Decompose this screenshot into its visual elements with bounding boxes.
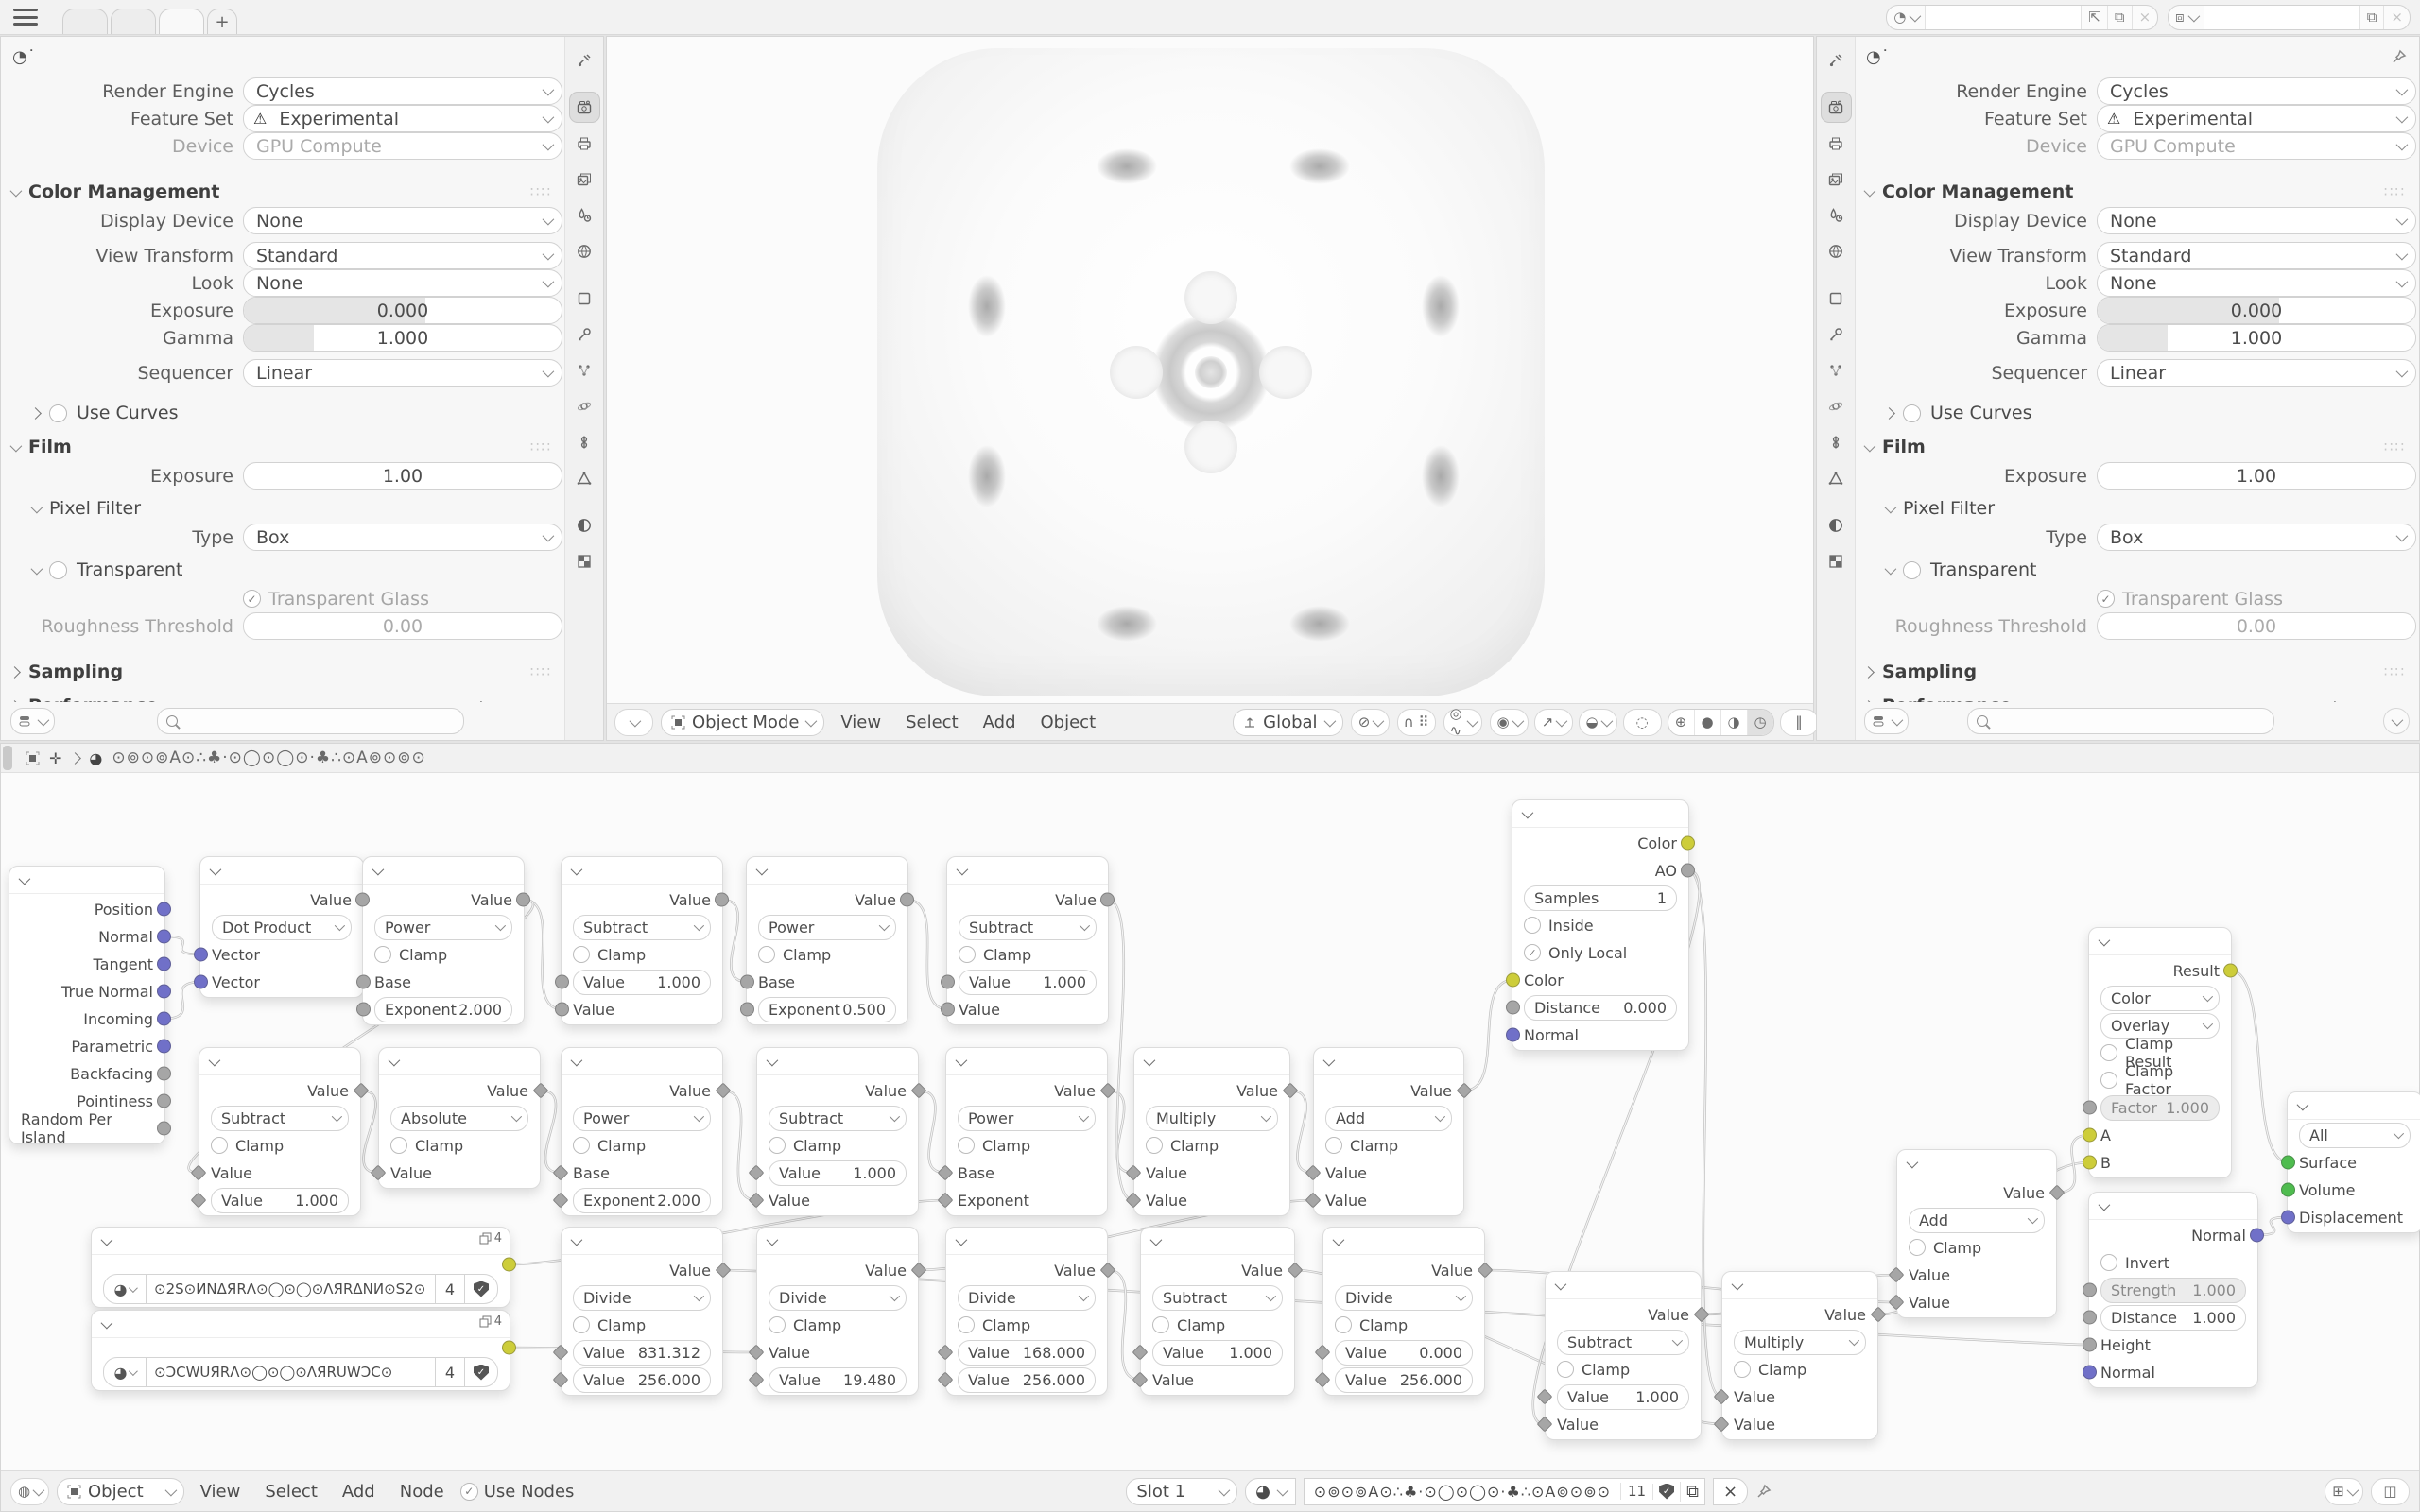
- editor-type-button[interactable]: ◍: [10, 1478, 49, 1505]
- node-dropdown[interactable]: Multiply: [1146, 1106, 1278, 1131]
- exposure-slider[interactable]: 0.000: [2097, 297, 2416, 324]
- scene-name-field[interactable]: [1926, 6, 2082, 29]
- node-dropdown[interactable]: Subtract: [211, 1106, 349, 1131]
- node-collapse-icon[interactable]: [767, 1233, 779, 1246]
- input-socket[interactable]: [1126, 1193, 1142, 1209]
- node-dropdown[interactable]: Divide: [573, 1285, 711, 1311]
- node[interactable]: ValueSubtractClampValue1.000Value: [1140, 1227, 1295, 1396]
- properties-tab-view-layer[interactable]: [569, 163, 600, 195]
- device-dropdown[interactable]: GPU Compute: [2097, 132, 2416, 160]
- node-checkbox[interactable]: [573, 1137, 590, 1154]
- input-socket[interactable]: [555, 1003, 569, 1017]
- output-socket[interactable]: [1871, 1307, 1887, 1323]
- gamma-slider[interactable]: 1.000: [2097, 324, 2416, 352]
- node-value-field[interactable]: Value1.000: [769, 1160, 907, 1186]
- exposure-field[interactable]: 1.00: [243, 462, 562, 490]
- input-socket[interactable]: [371, 1165, 387, 1181]
- node-dropdown[interactable]: Power: [374, 915, 512, 940]
- use-curves-checkbox[interactable]: [49, 404, 67, 422]
- menu-add[interactable]: Add: [975, 713, 1025, 732]
- node-checkbox[interactable]: [1524, 917, 1541, 934]
- input-socket[interactable]: [2083, 1366, 2097, 1380]
- node-checkbox[interactable]: [769, 1316, 786, 1333]
- image-users-count[interactable]: 4: [436, 1357, 465, 1387]
- app-menu-icon[interactable]: [13, 9, 38, 26]
- input-socket[interactable]: [1506, 973, 1520, 988]
- properties-tab-particles[interactable]: [569, 354, 600, 386]
- output-socket[interactable]: [1681, 836, 1695, 850]
- view-layer-name-field[interactable]: [2204, 6, 2360, 29]
- node-collapse-icon[interactable]: [372, 863, 385, 875]
- input-socket[interactable]: [553, 1345, 569, 1361]
- node-checkbox[interactable]: [211, 1137, 228, 1154]
- node-value-field[interactable]: Value1.000: [959, 970, 1097, 995]
- menu-view[interactable]: View: [832, 713, 890, 732]
- node-checkbox[interactable]: [758, 946, 775, 963]
- input-socket[interactable]: [194, 975, 208, 989]
- menu-select[interactable]: Select: [256, 1482, 326, 1502]
- node-collapse-icon[interactable]: [2297, 1098, 2309, 1110]
- panel-transparent[interactable]: Transparent: [1, 556, 565, 584]
- input-socket[interactable]: [749, 1193, 765, 1209]
- transparent-glass-checkbox[interactable]: ✓Transparent Glass: [243, 589, 429, 610]
- node-dropdown[interactable]: Subtract: [1152, 1285, 1283, 1311]
- output-socket[interactable]: [716, 1083, 732, 1099]
- filter-toggle-button[interactable]: [1864, 708, 1909, 734]
- roughness-threshold-field[interactable]: 0.00: [2097, 612, 2416, 640]
- input-socket[interactable]: [2281, 1211, 2295, 1225]
- input-socket[interactable]: [1132, 1345, 1149, 1361]
- properties-editor-icon[interactable]: ◔˙: [12, 47, 36, 67]
- search-input[interactable]: [157, 708, 464, 734]
- node[interactable]: ValueDivideClampValue831.312Value256.000: [561, 1227, 723, 1396]
- node-checkbox[interactable]: [2100, 1044, 2117, 1061]
- properties-tab-render[interactable]: [569, 92, 600, 123]
- drag-grip-icon[interactable]: ∷∷: [2384, 663, 2406, 680]
- node-collapse-icon[interactable]: [571, 1233, 583, 1246]
- properties-tab-render[interactable]: [1821, 92, 1852, 123]
- input-socket[interactable]: [191, 1193, 207, 1209]
- output-socket[interactable]: [2223, 964, 2238, 978]
- shading-wireframe-icon[interactable]: ⊕: [1668, 710, 1695, 735]
- output-socket[interactable]: [1100, 1083, 1116, 1099]
- output-socket[interactable]: [157, 1039, 171, 1054]
- input-socket[interactable]: [1506, 1001, 1520, 1015]
- input-socket[interactable]: [1315, 1345, 1331, 1361]
- properties-editor-icon[interactable]: ◔˙: [1866, 47, 1890, 67]
- output-socket[interactable]: [1457, 1083, 1473, 1099]
- roughness-threshold-field[interactable]: 0.00: [243, 612, 562, 640]
- copy-icon[interactable]: ⧉: [2360, 6, 2385, 29]
- input-socket[interactable]: [1714, 1389, 1730, 1405]
- output-socket[interactable]: [355, 893, 370, 907]
- node-collapse-icon[interactable]: [767, 1054, 779, 1066]
- type-dropdown[interactable]: Box: [2097, 524, 2416, 551]
- input-socket[interactable]: [553, 1193, 569, 1209]
- output-socket[interactable]: [1694, 1307, 1710, 1323]
- node-checkbox[interactable]: [958, 1137, 975, 1154]
- node-value-field[interactable]: Exponent2.000: [573, 1188, 711, 1213]
- output-socket[interactable]: [157, 1012, 171, 1026]
- properties-tab-physics[interactable]: [1821, 390, 1852, 421]
- close-icon[interactable]: ×: [2133, 6, 2158, 29]
- scene-icon[interactable]: ◔: [1887, 6, 1926, 29]
- pin-icon[interactable]: [1755, 1483, 1772, 1500]
- input-socket[interactable]: [938, 1165, 954, 1181]
- output-socket[interactable]: [1283, 1083, 1299, 1099]
- node-dropdown[interactable]: Power: [958, 1106, 1096, 1131]
- node-value-field[interactable]: Value256.000: [1335, 1367, 1473, 1393]
- shading-material-icon[interactable]: ◑: [1721, 710, 1748, 735]
- input-socket[interactable]: [1537, 1417, 1553, 1433]
- node[interactable]: PositionNormalTangentTrue NormalIncoming…: [9, 866, 165, 1144]
- node-value-field[interactable]: Value0.000: [1335, 1340, 1473, 1366]
- node-value-field[interactable]: Value1.000: [573, 970, 711, 995]
- material-users-count[interactable]: 11: [1620, 1483, 1652, 1500]
- input-socket[interactable]: [2083, 1338, 2097, 1352]
- output-socket[interactable]: [1681, 864, 1695, 878]
- input-socket[interactable]: [356, 975, 371, 989]
- node-checkbox[interactable]: [1909, 1239, 1926, 1256]
- node-value-field[interactable]: Value256.000: [958, 1367, 1096, 1393]
- workspace-tab[interactable]: [159, 9, 204, 34]
- node-dropdown[interactable]: Multiply: [1734, 1330, 1866, 1355]
- node-collapse-icon[interactable]: [571, 1054, 583, 1066]
- input-socket[interactable]: [194, 948, 208, 962]
- drag-grip-icon[interactable]: ∷∷: [2384, 438, 2406, 455]
- node[interactable]: 4◕⊙ƆCWUЯRΛ⊙◯⊙◯⊙ΛЯRUWƆC⊙4✓: [91, 1310, 510, 1391]
- input-socket[interactable]: [356, 1003, 371, 1017]
- input-socket[interactable]: [749, 1165, 765, 1181]
- input-socket[interactable]: [749, 1372, 765, 1388]
- panel-sampling[interactable]: Sampling∷∷: [1, 658, 565, 686]
- drag-grip-icon[interactable]: ∷∷: [2384, 183, 2406, 200]
- input-socket[interactable]: [941, 975, 955, 989]
- node-value-field[interactable]: Value1.000: [1152, 1340, 1283, 1366]
- node-collapse-icon[interactable]: [19, 872, 31, 885]
- node[interactable]: ValueDivideClampValue0.000Value256.000: [1322, 1227, 1485, 1396]
- input-socket[interactable]: [2083, 1156, 2097, 1170]
- input-socket[interactable]: [2083, 1283, 2097, 1297]
- node-collapse-icon[interactable]: [957, 863, 969, 875]
- node-dropdown[interactable]: Power: [758, 915, 896, 940]
- node[interactable]: ColorAOSamples1Inside✓Only LocalColorDis…: [1512, 799, 1689, 1051]
- view-layer-selector[interactable]: ⧈ ⧉ ×: [2168, 5, 2411, 30]
- input-socket[interactable]: [1537, 1389, 1553, 1405]
- panel-performance[interactable]: Performance⁞≡∷∷: [1855, 692, 2419, 702]
- gamma-slider[interactable]: 1.000: [243, 324, 562, 352]
- properties-tab-texture[interactable]: [1821, 545, 1852, 576]
- panel-checkbox[interactable]: [1903, 561, 1921, 579]
- node-dropdown[interactable]: Power: [573, 1106, 711, 1131]
- image-browse-button[interactable]: ◕: [103, 1274, 147, 1304]
- pin-icon[interactable]: [2391, 48, 2408, 65]
- input-socket[interactable]: [938, 1345, 954, 1361]
- node-dropdown[interactable]: Subtract: [959, 915, 1097, 940]
- node[interactable]: ValueSubtractClampValue1.000Value: [756, 1047, 919, 1216]
- node-value-field[interactable]: Value1.000: [211, 1188, 349, 1213]
- input-socket[interactable]: [1315, 1372, 1331, 1388]
- output-socket[interactable]: [1100, 893, 1115, 907]
- properties-tab-material[interactable]: [1821, 509, 1852, 541]
- node-dropdown[interactable]: Subtract: [573, 915, 711, 940]
- overlays-button[interactable]: ◒: [1579, 709, 1617, 736]
- transform-orientation-selector[interactable]: Global: [1233, 709, 1342, 736]
- panel-pixel-filter[interactable]: Pixel Filter: [1855, 494, 2419, 523]
- properties-tab-output[interactable]: [1821, 128, 1852, 159]
- use-nodes-checkbox[interactable]: ✓ Use Nodes: [460, 1482, 575, 1502]
- output-socket[interactable]: [1100, 1263, 1116, 1279]
- search-input[interactable]: [1967, 708, 2274, 734]
- exposure-slider[interactable]: 0.000: [243, 297, 562, 324]
- output-socket[interactable]: [502, 1341, 516, 1355]
- node-checkbox[interactable]: [1335, 1316, 1352, 1333]
- output-socket[interactable]: [157, 930, 171, 944]
- node-collapse-icon[interactable]: [1333, 1233, 1345, 1246]
- properties-tab-object[interactable]: [569, 283, 600, 314]
- device-dropdown[interactable]: GPU Compute: [243, 132, 562, 160]
- output-socket[interactable]: [911, 1263, 927, 1279]
- properties-tab-data[interactable]: [569, 462, 600, 493]
- gizmo-button[interactable]: ↗: [1534, 709, 1573, 736]
- node-checkbox[interactable]: [1325, 1137, 1342, 1154]
- input-socket[interactable]: [2083, 1128, 2097, 1143]
- node-value-field[interactable]: Distance1.000: [2100, 1305, 2246, 1331]
- properties-tab-constraints[interactable]: [1821, 426, 1852, 457]
- node-value-field[interactable]: Value256.000: [573, 1367, 711, 1393]
- output-socket[interactable]: [2250, 1228, 2264, 1243]
- snap-target-button[interactable]: ⊘: [1351, 709, 1390, 736]
- properties-tab-world[interactable]: [569, 235, 600, 266]
- output-socket[interactable]: [911, 1083, 927, 1099]
- node-checkbox[interactable]: [374, 946, 391, 963]
- node[interactable]: ValuePowerClampBaseExponent2.000: [362, 856, 525, 1025]
- input-socket[interactable]: [191, 1165, 207, 1181]
- output-socket[interactable]: [516, 893, 530, 907]
- output-socket[interactable]: [900, 893, 914, 907]
- fake-user-shield-icon[interactable]: ✓: [1652, 1484, 1680, 1500]
- input-socket[interactable]: [740, 1003, 754, 1017]
- node[interactable]: ValueAbsoluteClampValue: [378, 1047, 541, 1189]
- properties-tab-material[interactable]: [569, 509, 600, 541]
- input-socket[interactable]: [1889, 1295, 1905, 1311]
- node-value-field[interactable]: Value1.000: [1557, 1384, 1689, 1410]
- node-dropdown[interactable]: Absolute: [390, 1106, 528, 1131]
- node-value-field[interactable]: Exponent2.000: [374, 997, 512, 1022]
- node-collapse-icon[interactable]: [956, 1233, 968, 1246]
- node-collapse-icon[interactable]: [2099, 934, 2111, 946]
- node-checkbox[interactable]: [573, 946, 590, 963]
- drag-grip-icon[interactable]: ∷∷: [530, 663, 552, 680]
- input-socket[interactable]: [740, 975, 754, 989]
- input-socket[interactable]: [1126, 1165, 1142, 1181]
- mode-selector[interactable]: Object Mode: [661, 709, 824, 736]
- properties-tab-view-layer[interactable]: [1821, 163, 1852, 195]
- node[interactable]: ValueSubtractClampValue1.000Value: [1545, 1271, 1702, 1440]
- view-transform-dropdown[interactable]: Standard: [2097, 242, 2416, 269]
- output-socket[interactable]: [157, 902, 171, 917]
- panel-color-management[interactable]: Color Management∷∷: [1, 178, 565, 206]
- view-layer-icon[interactable]: ⧈: [2169, 6, 2204, 29]
- menu-add[interactable]: Add: [334, 1482, 384, 1502]
- node-dropdown[interactable]: Color: [2100, 986, 2220, 1011]
- node-collapse-icon[interactable]: [1144, 1054, 1156, 1066]
- panel-use-curves[interactable]: Use Curves: [1855, 399, 2419, 427]
- menu-node[interactable]: Node: [391, 1482, 453, 1502]
- input-socket[interactable]: [2281, 1183, 2295, 1197]
- input-socket[interactable]: [1889, 1267, 1905, 1283]
- output-socket[interactable]: [157, 985, 171, 999]
- unlink-button[interactable]: ×: [1713, 1478, 1748, 1505]
- image-name-field[interactable]: ⊙2S⊙ИNΔЯRΛ⊙◯⊙◯⊙ΛЯRΔNИ⊙S2⊙: [147, 1274, 436, 1304]
- overlays-toggle-button[interactable]: ◫: [2371, 1478, 2410, 1505]
- menu-select[interactable]: Select: [897, 713, 967, 732]
- shading-solid-icon[interactable]: ●: [1695, 710, 1721, 735]
- drag-grip-icon[interactable]: ∷∷: [530, 438, 552, 455]
- menu-object[interactable]: Object: [1032, 713, 1105, 732]
- properties-tab-world[interactable]: [1821, 235, 1852, 266]
- properties-tab-texture[interactable]: [569, 545, 600, 576]
- output-socket[interactable]: [157, 1067, 171, 1081]
- node-collapse-icon[interactable]: [1323, 1054, 1336, 1066]
- output-socket[interactable]: [2049, 1185, 2066, 1201]
- collapse-button[interactable]: [2383, 708, 2410, 734]
- node[interactable]: ResultColorOverlayClamp ResultClamp Fact…: [2088, 927, 2232, 1178]
- node-collapse-icon[interactable]: [1522, 806, 1534, 818]
- region-toggle-button[interactable]: [614, 709, 653, 736]
- properties-tab-output[interactable]: [569, 128, 600, 159]
- render-engine-dropdown[interactable]: Cycles: [2097, 77, 2416, 105]
- output-socket[interactable]: [533, 1083, 549, 1099]
- node-collapse-icon[interactable]: [2099, 1198, 2111, 1211]
- copy-icon[interactable]: ⧉: [2108, 6, 2133, 29]
- node-checkbox[interactable]: [390, 1137, 407, 1154]
- output-socket[interactable]: [157, 1122, 171, 1136]
- node-value-field[interactable]: Strength1.000: [2100, 1278, 2246, 1303]
- panel-checkbox[interactable]: [49, 561, 67, 579]
- node-collapse-icon[interactable]: [1150, 1233, 1163, 1246]
- node-checkbox[interactable]: [2100, 1254, 2117, 1271]
- properties-tab-constraints[interactable]: [569, 426, 600, 457]
- fake-user-shield-icon[interactable]: ✓: [465, 1357, 498, 1387]
- input-socket[interactable]: [1714, 1417, 1730, 1433]
- node-dropdown[interactable]: Add: [1325, 1106, 1452, 1131]
- image-browse-button[interactable]: ◕: [103, 1357, 147, 1387]
- look-dropdown[interactable]: None: [243, 269, 562, 297]
- node-checkbox[interactable]: [1557, 1361, 1574, 1378]
- close-icon[interactable]: ×: [2384, 6, 2410, 29]
- node-value-field[interactable]: Value831.312: [573, 1340, 711, 1366]
- look-dropdown[interactable]: None: [2097, 269, 2416, 297]
- node-dropdown[interactable]: Divide: [958, 1285, 1096, 1311]
- node[interactable]: ValuePowerClampBaseExponent2.000: [561, 1047, 723, 1216]
- panel-transparent[interactable]: Transparent: [1855, 556, 2419, 584]
- snapping-button[interactable]: ⊞: [2325, 1478, 2363, 1505]
- node-collapse-icon[interactable]: [1907, 1156, 1919, 1168]
- shading-rendered-icon[interactable]: ◷: [1748, 710, 1773, 735]
- visibility-button[interactable]: ◉: [1490, 709, 1529, 736]
- node-collapse-icon[interactable]: [1555, 1278, 1567, 1290]
- node-collapse-icon[interactable]: [209, 1054, 221, 1066]
- node[interactable]: ValueSubtractClampValue1.000Value: [561, 856, 723, 1025]
- node[interactable]: ValueDivideClampValue168.000Value256.000: [945, 1227, 1108, 1396]
- node-checkbox[interactable]: [958, 1316, 975, 1333]
- properties-tab-physics[interactable]: [569, 390, 600, 421]
- fake-user-shield-icon[interactable]: ✓: [465, 1274, 498, 1304]
- workspace-tab[interactable]: [111, 9, 156, 34]
- node-checkbox[interactable]: [1152, 1316, 1169, 1333]
- snap-magnet-button[interactable]: ∩ ⠿: [1397, 709, 1436, 736]
- properties-tab-tool[interactable]: [569, 44, 600, 76]
- output-socket[interactable]: [157, 957, 171, 971]
- node[interactable]: ValueDivideClampValueValue19.480: [756, 1227, 919, 1396]
- node[interactable]: 4◕⊙2S⊙ИNΔЯRΛ⊙◯⊙◯⊙ΛЯRΔNИ⊙S2⊙4✓: [91, 1227, 510, 1308]
- output-socket[interactable]: [715, 893, 729, 907]
- node-collapse-icon[interactable]: [210, 863, 222, 875]
- node-dropdown[interactable]: Divide: [1335, 1285, 1473, 1311]
- node[interactable]: ValueSubtractClampValue1.000Value: [946, 856, 1109, 1025]
- input-socket[interactable]: [553, 1165, 569, 1181]
- node-checkbox[interactable]: [769, 1137, 786, 1154]
- input-socket[interactable]: [555, 975, 569, 989]
- properties-tab-object[interactable]: [1821, 283, 1852, 314]
- input-socket[interactable]: [2281, 1156, 2295, 1170]
- node-checkbox[interactable]: [1146, 1137, 1163, 1154]
- image-users-count[interactable]: 4: [436, 1274, 465, 1304]
- panel-sampling[interactable]: Sampling∷∷: [1855, 658, 2419, 686]
- properties-tab-tool[interactable]: [1821, 44, 1852, 76]
- panel-use-curves[interactable]: Use Curves: [1, 399, 565, 427]
- node-dropdown[interactable]: Subtract: [1557, 1330, 1689, 1355]
- node-collapse-icon[interactable]: [756, 863, 769, 875]
- node-value-field[interactable]: Value19.480: [769, 1367, 907, 1393]
- node-collapse-icon[interactable]: [1732, 1278, 1744, 1290]
- proportional-editing-button[interactable]: ◎ ∿: [1443, 709, 1482, 736]
- add-workspace-button[interactable]: +: [207, 9, 237, 34]
- node-checkbox[interactable]: ✓: [1524, 944, 1541, 961]
- feature-set-dropdown[interactable]: ⚠Experimental: [243, 105, 562, 132]
- properties-tab-data[interactable]: [1821, 462, 1852, 493]
- node[interactable]: ValueAddClampValueValue: [1313, 1047, 1464, 1216]
- type-dropdown[interactable]: Box: [243, 524, 562, 551]
- filter-toggle-button[interactable]: [10, 708, 55, 734]
- node-collapse-icon[interactable]: [101, 1316, 113, 1329]
- sequencer-dropdown[interactable]: Linear: [2097, 359, 2416, 387]
- scene-selector[interactable]: ◔ ⇱ ⧉ ×: [1886, 5, 2158, 30]
- node-dropdown[interactable]: All: [2299, 1123, 2411, 1148]
- properties-tab-modifiers[interactable]: [1821, 318, 1852, 350]
- properties-tab-scene[interactable]: [569, 199, 600, 231]
- xray-button[interactable]: ◌: [1623, 709, 1662, 736]
- viewport-3d[interactable]: Object Mode View Select Add Object Globa…: [606, 36, 1814, 741]
- panel-performance[interactable]: Performance⁞≡∷∷: [1, 692, 565, 702]
- node-dropdown[interactable]: Subtract: [769, 1106, 907, 1131]
- feature-set-dropdown[interactable]: ⚠Experimental: [2097, 105, 2416, 132]
- input-socket[interactable]: [941, 1003, 955, 1017]
- node[interactable]: ValueMultiplyClampValueValue: [1721, 1271, 1878, 1440]
- input-socket[interactable]: [938, 1372, 954, 1388]
- workspace-tab[interactable]: [62, 9, 108, 34]
- pause-button[interactable]: ‖: [1780, 709, 1819, 736]
- view-transform-dropdown[interactable]: Standard: [243, 242, 562, 269]
- panel-color-management[interactable]: Color Management∷∷: [1855, 178, 2419, 206]
- output-socket[interactable]: [354, 1083, 370, 1099]
- output-socket[interactable]: [502, 1258, 516, 1272]
- panel-pixel-filter[interactable]: Pixel Filter: [1, 494, 565, 523]
- node[interactable]: AllSurfaceVolumeDisplacement: [2287, 1091, 2420, 1233]
- input-socket[interactable]: [1132, 1372, 1149, 1388]
- node-checkbox[interactable]: [573, 1316, 590, 1333]
